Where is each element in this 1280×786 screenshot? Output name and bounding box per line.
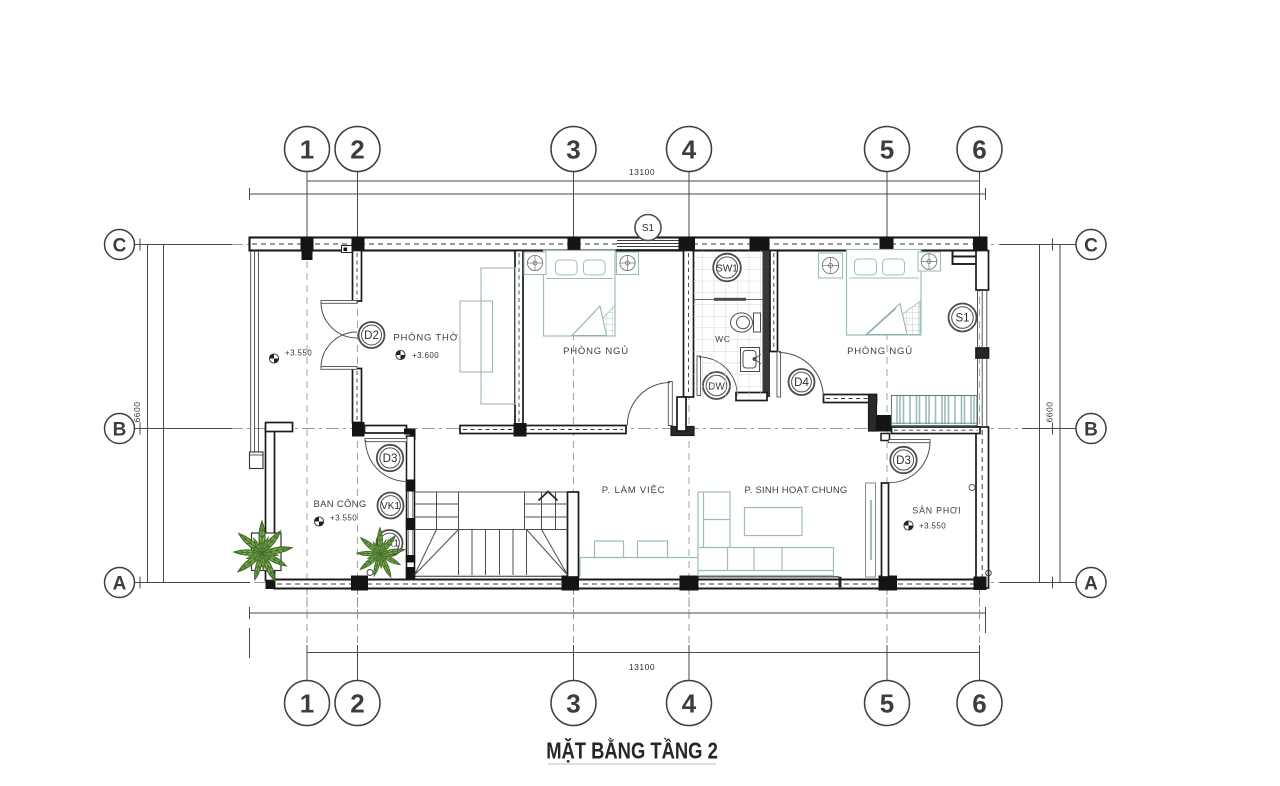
svg-text:+3.550: +3.550 xyxy=(285,349,312,358)
svg-text:1: 1 xyxy=(300,689,314,719)
svg-text:C: C xyxy=(113,236,127,257)
svg-text:D3: D3 xyxy=(383,453,398,465)
svg-text:2: 2 xyxy=(350,689,364,719)
svg-text:+3.600: +3.600 xyxy=(412,351,439,360)
svg-text:A: A xyxy=(1084,574,1098,595)
svg-text:B: B xyxy=(113,420,127,441)
svg-text:WC: WC xyxy=(715,334,731,344)
svg-text:3: 3 xyxy=(566,689,580,719)
svg-text:S1: S1 xyxy=(642,223,655,234)
svg-text:BAN CÔNG: BAN CÔNG xyxy=(313,499,366,510)
svg-text:6: 6 xyxy=(972,689,986,719)
svg-text:3: 3 xyxy=(566,135,580,165)
svg-text:P. SINH HOẠT CHUNG: P. SINH HOẠT CHUNG xyxy=(744,485,847,496)
svg-text:PHÒNG NGỦ: PHÒNG NGỦ xyxy=(847,345,913,357)
svg-text:D3: D3 xyxy=(896,455,911,467)
svg-text:13100: 13100 xyxy=(629,167,655,177)
svg-text:S1: S1 xyxy=(955,313,969,325)
svg-text:4: 4 xyxy=(682,135,697,165)
svg-text:B: B xyxy=(1084,420,1098,441)
svg-text:5: 5 xyxy=(880,689,894,719)
svg-text:5: 5 xyxy=(880,135,894,165)
svg-text:PHÒNG NGỦ: PHÒNG NGỦ xyxy=(563,345,629,357)
svg-text:C: C xyxy=(1084,236,1098,257)
svg-text:6600: 6600 xyxy=(132,402,142,423)
svg-text:4: 4 xyxy=(682,689,697,719)
svg-text:VK1: VK1 xyxy=(381,501,400,512)
svg-text:A: A xyxy=(113,574,127,595)
svg-text:SÂN PHƠI: SÂN PHƠI xyxy=(912,506,961,516)
svg-text:D4: D4 xyxy=(794,377,809,389)
svg-text:SW1: SW1 xyxy=(716,263,738,274)
svg-text:6: 6 xyxy=(972,135,986,165)
svg-text:6600: 6600 xyxy=(1045,402,1055,423)
svg-text:2: 2 xyxy=(350,135,364,165)
svg-text:13100: 13100 xyxy=(629,662,655,672)
svg-text:PHÒNG THỜ: PHÒNG THỜ xyxy=(393,333,458,344)
svg-text:+3.550: +3.550 xyxy=(330,514,357,523)
svg-text:D2: D2 xyxy=(364,330,379,342)
svg-text:P. LÀM VIỆC: P. LÀM VIỆC xyxy=(602,485,666,496)
svg-text:1: 1 xyxy=(300,135,314,165)
svg-text:+3.550: +3.550 xyxy=(919,522,946,531)
svg-text:MẶT BẰNG TẦNG 2: MẶT BẰNG TẦNG 2 xyxy=(546,738,718,765)
